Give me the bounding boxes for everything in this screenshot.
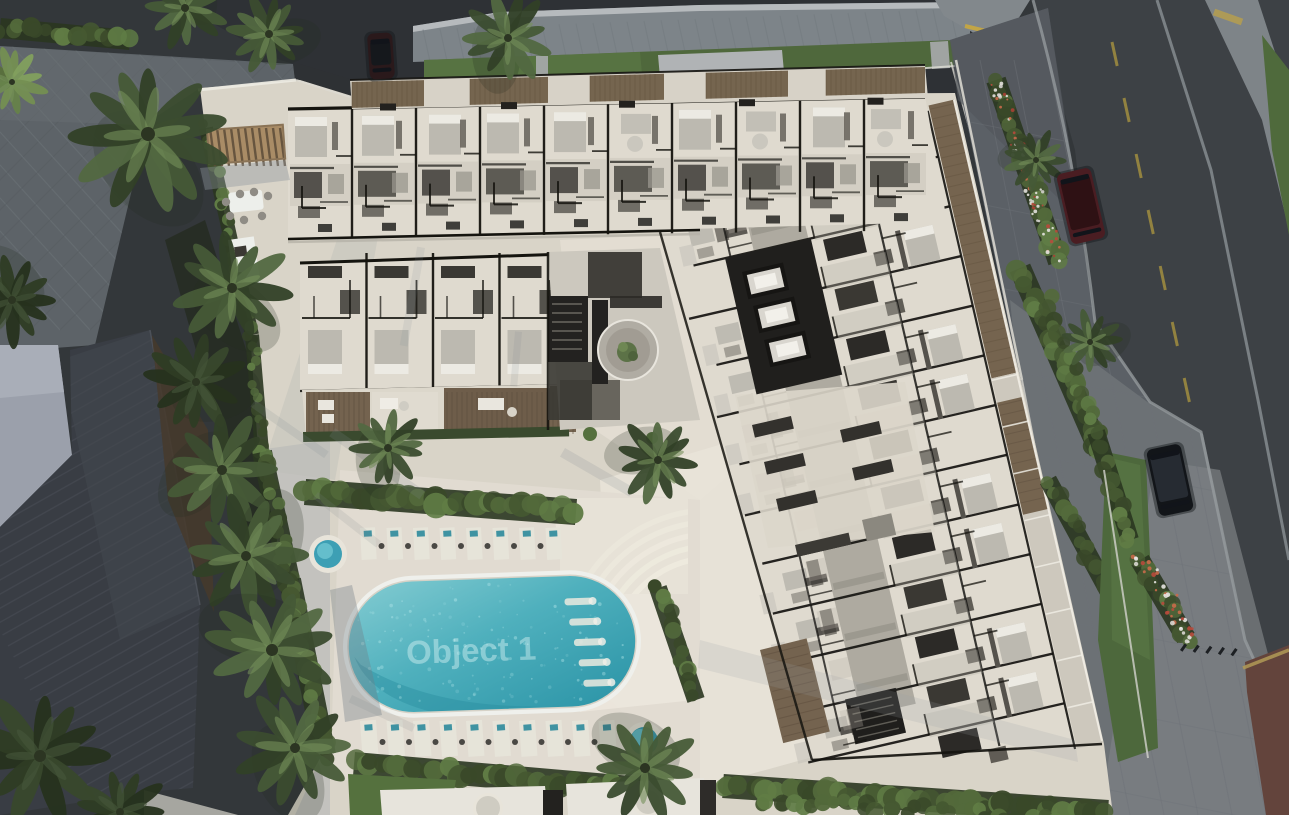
svg-text:Object 1: Object 1 [405,629,536,671]
